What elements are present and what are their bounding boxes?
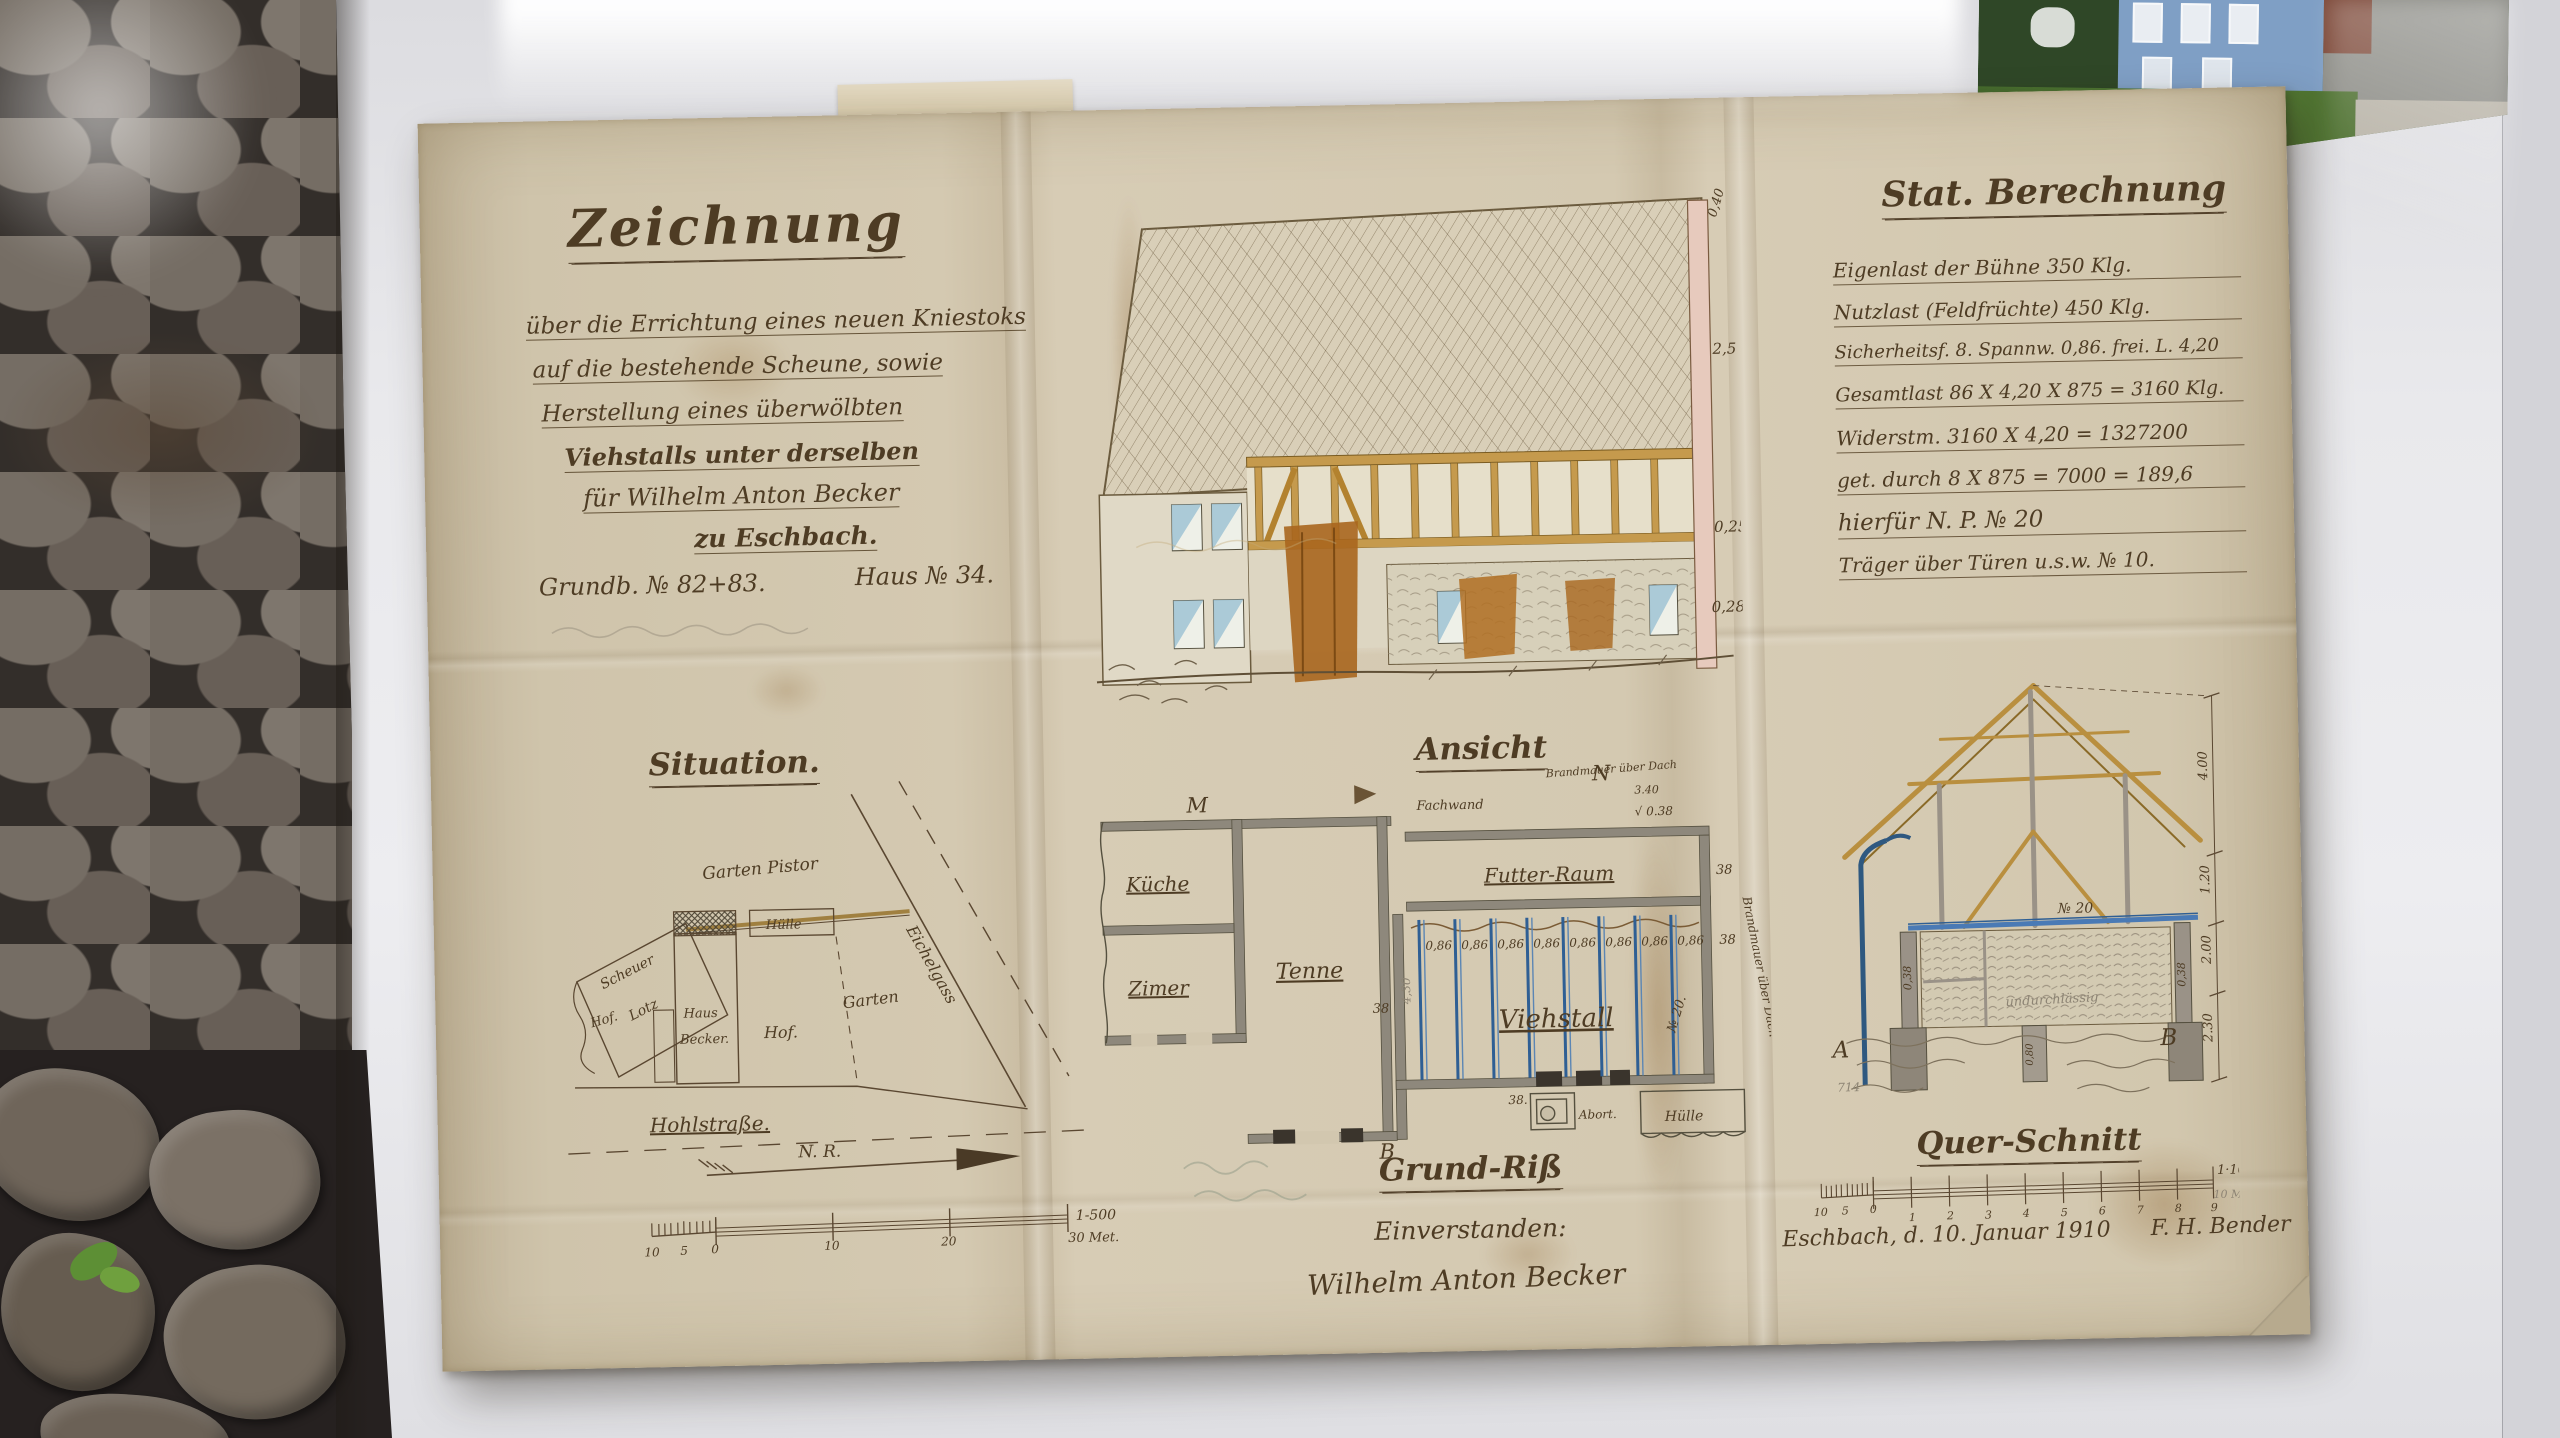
section-dim: 2.00 bbox=[2199, 935, 2215, 965]
stall-dim: 0,86 bbox=[1569, 935, 1596, 950]
scheuer-label: Scheuer bbox=[598, 951, 659, 993]
marker-a: A bbox=[1830, 1037, 1849, 1063]
haus-label: Haus bbox=[682, 1006, 718, 1022]
consent-label: Einverstanden: bbox=[1374, 1213, 1567, 1246]
stat-heading: Stat. Berechnung bbox=[1881, 168, 2227, 220]
scale-tick: 5 bbox=[1842, 1204, 1849, 1217]
grundriss-heading: Grund-Riß bbox=[1379, 1149, 1563, 1193]
photo-window bbox=[2228, 4, 2259, 44]
stall-dim: 0,86 bbox=[1425, 938, 1452, 953]
window bbox=[1171, 504, 1202, 551]
scale-num: 3 bbox=[1985, 1208, 1992, 1221]
scale-num: 9 bbox=[2211, 1201, 2218, 1214]
glass-reflection-top bbox=[500, 0, 1960, 110]
scale-ratio: 1·100 bbox=[2217, 1162, 2240, 1178]
garten-pistor-label: Garten Pistor bbox=[702, 854, 820, 884]
scale-num: 1 bbox=[1909, 1211, 1916, 1224]
stall-dim: 0,86 bbox=[1677, 933, 1704, 948]
lotz-label: Lotz bbox=[625, 996, 661, 1025]
elevation-dim: 0,28 bbox=[1711, 597, 1745, 616]
pencil-note-squiggle bbox=[546, 613, 846, 643]
photo-roof-bit bbox=[2323, 0, 2372, 54]
dim-430: 4,30 bbox=[1399, 977, 1414, 1005]
hohlstrasse-label: Hohlstraße. bbox=[649, 1111, 771, 1137]
marker-m: M bbox=[1185, 793, 1208, 817]
pencil-scribbles bbox=[1173, 1145, 1355, 1229]
pier-dim: 0,80 bbox=[2024, 1043, 2035, 1066]
board-edge-shadow bbox=[336, 0, 370, 1438]
elevation-dim: 2,5 bbox=[1711, 339, 1736, 357]
north-label: N. R. bbox=[797, 1142, 841, 1163]
cobblestone-pavement bbox=[0, 0, 352, 1438]
stall-vault: undurchlässig bbox=[1920, 927, 2172, 1028]
stat-line: get. durch 8 X 875 = 7000 = 189,6 bbox=[1837, 460, 2245, 495]
cross-section: № 20 undurchlässig 0,38 0,38 0,80 bbox=[1818, 638, 2238, 1126]
dwelling-wall bbox=[1099, 492, 1251, 685]
scale-num: 8 bbox=[2175, 1202, 2182, 1215]
garten-label: Garten bbox=[842, 987, 900, 1013]
huelle-label: Hülle bbox=[1664, 1108, 1704, 1125]
title-line: für Wilhelm Anton Becker bbox=[583, 478, 900, 513]
stat-line: hierfür N. P. № 20 bbox=[1838, 502, 2246, 539]
brown-patch bbox=[1459, 574, 1519, 659]
stat-line: Träger über Türen u.s.w. № 10. bbox=[1839, 545, 2247, 580]
becker-label: Becker. bbox=[679, 1032, 729, 1048]
section-dim: 2.30 bbox=[2201, 1013, 2217, 1043]
scale-num: 4 bbox=[2022, 1207, 2030, 1220]
scale-num: 7 bbox=[2137, 1203, 2144, 1216]
steel-beam: № 20 bbox=[1908, 898, 2198, 928]
page-title: Zeichnung bbox=[567, 192, 905, 264]
viehstall-label: Viehstall bbox=[1499, 1003, 1614, 1035]
house-number: Haus № 34. bbox=[855, 560, 995, 591]
registry-number: Grundb. № 82+83. bbox=[539, 569, 766, 602]
wall-dim-left: 0,38 bbox=[1901, 966, 1914, 991]
dim-38-bottom: 38. bbox=[1508, 1093, 1527, 1107]
framed-drawing-photo: Zeichnung über die Errichtung eines neue… bbox=[0, 0, 2560, 1438]
scale-tick: 10 bbox=[824, 1239, 840, 1253]
scale-ratio: 1-500 bbox=[1076, 1207, 1117, 1224]
brown-patch bbox=[1565, 578, 1616, 651]
owner-signature: Wilhelm Anton Becker bbox=[1307, 1257, 1626, 1302]
marker-b: B bbox=[2159, 1025, 2177, 1051]
photo-window bbox=[2180, 3, 2211, 43]
scale-length: 10 M. bbox=[2213, 1187, 2240, 1201]
stat-line: Gesamtlast 86 X 4,20 X 875 = 3160 Klg. bbox=[1835, 376, 2243, 409]
kueche-label: Küche bbox=[1125, 872, 1190, 897]
elevation-drawing: 0,40 2,5 0,25 0,28 bbox=[1079, 187, 1745, 735]
stat-line: Nutzlast (Feldfrüchte) 450 Klg. bbox=[1833, 292, 2241, 327]
situation-scale-bar: 10 5 0 10 20 1-500 30 Met. bbox=[644, 1203, 1120, 1260]
roof-truss bbox=[1841, 682, 2202, 929]
elevation-dim: 0,25 bbox=[1714, 517, 1745, 536]
stall-dim: 0,86 bbox=[1497, 937, 1524, 952]
scale-fine-ticks: 10 5 0 bbox=[1813, 1181, 1877, 1219]
window bbox=[1213, 599, 1244, 648]
dim-340: 3.40 bbox=[1634, 783, 1659, 796]
section-dim: 4.00 bbox=[2196, 751, 2212, 781]
stall-dim: 0,86 bbox=[1461, 938, 1488, 953]
eichelgass-label: Eichelgass bbox=[902, 921, 961, 1007]
beam-no-label: № 20 bbox=[2057, 900, 2094, 917]
stall-dim: 0,86 bbox=[1533, 936, 1560, 951]
bent-corner bbox=[2235, 1276, 2310, 1335]
dim-38: 38 bbox=[1719, 933, 1736, 948]
scale-num: 6 bbox=[2099, 1204, 2106, 1217]
pencil-714: 714 bbox=[1837, 1080, 1860, 1094]
stall-dim: 0,86 bbox=[1605, 935, 1632, 950]
board-right-band bbox=[2502, 0, 2560, 1438]
window bbox=[1649, 585, 1678, 636]
brandmauer-top-label: Brandmauer über Dach bbox=[1544, 758, 1677, 781]
plan-annex-boxes bbox=[1530, 1089, 1745, 1139]
north-arrow: N. R. bbox=[698, 1138, 1021, 1175]
photo-path bbox=[2355, 100, 2508, 156]
futter-raum-label: Futter-Raum bbox=[1483, 861, 1615, 888]
author-signature: F. H. Bender bbox=[2150, 1212, 2291, 1241]
fachwand-label: Fachwand bbox=[1415, 798, 1483, 814]
brandmauer-side-label: Brandmauer über Dach bbox=[1739, 894, 1774, 1038]
scale-tick: 10 bbox=[644, 1245, 660, 1259]
scale-tick: 10 bbox=[1814, 1206, 1828, 1219]
scale-tick: 20 bbox=[940, 1234, 957, 1248]
photo-white-object bbox=[2030, 7, 2075, 48]
window bbox=[1173, 600, 1204, 649]
scale-num: 5 bbox=[2061, 1206, 2068, 1219]
dirt-patch bbox=[0, 300, 360, 560]
title-line: auf die bestehende Scheune, sowie bbox=[532, 349, 943, 384]
dim-38: 38 bbox=[1716, 863, 1733, 878]
abort-label: Abort. bbox=[1578, 1107, 1617, 1122]
tenne-label: Tenne bbox=[1276, 958, 1344, 984]
section-arrow bbox=[1354, 785, 1376, 804]
huelle-label: Hülle bbox=[765, 917, 802, 933]
zimer-label: Zimer bbox=[1127, 976, 1191, 1001]
drawing-sheet: Zeichnung über die Errichtung eines neue… bbox=[418, 86, 2311, 1371]
dim-38: 38 bbox=[1372, 1002, 1389, 1017]
wall-dim-right: 0,38 bbox=[2175, 962, 2188, 987]
hof-left-label: Hof. bbox=[588, 1009, 620, 1031]
section-dim: 1.20 bbox=[2198, 865, 2214, 894]
hof-label: Hof. bbox=[763, 1022, 798, 1042]
stat-line: Sicherheitsf. 8. Spannw. 0,86. frei. L. … bbox=[1834, 334, 2242, 366]
elevation-dim: 0,40 bbox=[1705, 187, 1728, 219]
dim-038: √ 0.38 bbox=[1635, 804, 1674, 819]
stat-line: Eigenlast der Bühne 350 Klg. bbox=[1833, 250, 2241, 285]
title-line: zu Eschbach. bbox=[694, 521, 878, 555]
scale-length: 30 Met. bbox=[1068, 1230, 1119, 1246]
title-line: über die Errichtung eines neuen Kniestok… bbox=[525, 304, 1026, 341]
scale-tick: 5 bbox=[680, 1244, 688, 1258]
stall-dim: 0,86 bbox=[1641, 934, 1668, 949]
title-line: Herstellung eines überwölbten bbox=[541, 394, 903, 428]
floor-plan: M N Fachwand Brandmauer über Dach 3.40 √… bbox=[1086, 747, 1774, 1181]
scale-tick: 0 bbox=[711, 1242, 719, 1256]
window bbox=[1211, 503, 1242, 550]
scale-num: 2 bbox=[1946, 1209, 1954, 1222]
photo-window bbox=[2132, 2, 2163, 42]
stain bbox=[749, 664, 825, 717]
title-line: Viehstalls unter derselben bbox=[564, 436, 919, 473]
stat-line: Widerstm. 3160 X 4,20 = 1327200 bbox=[1836, 418, 2244, 453]
profile-no: № 20. bbox=[1664, 994, 1689, 1035]
